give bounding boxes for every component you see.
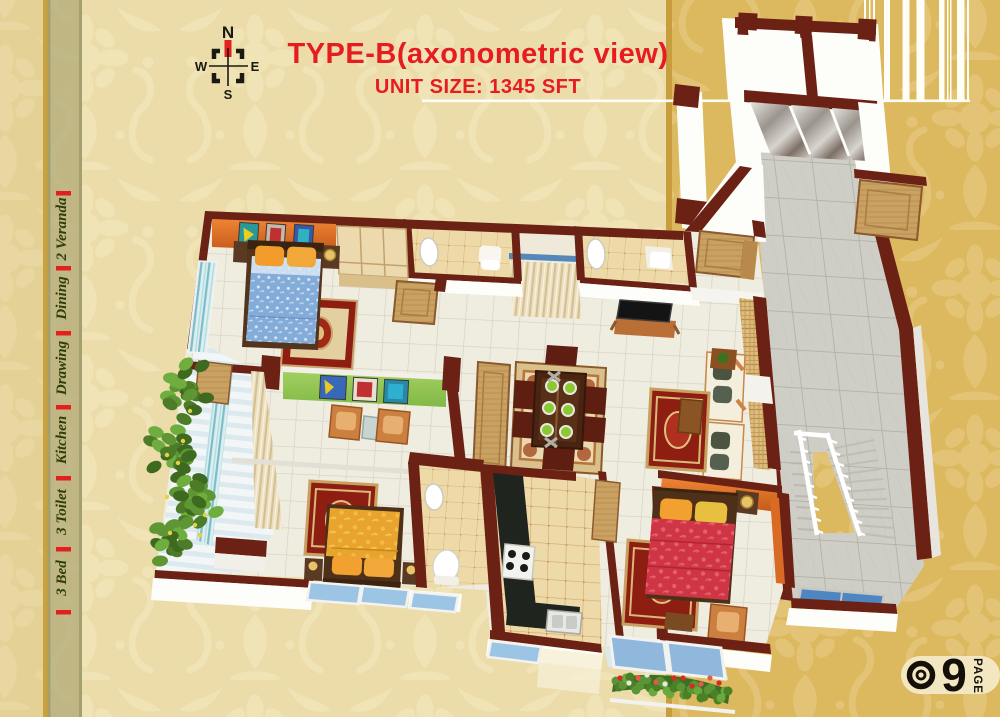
svg-text:Kitchen: Kitchen — [54, 416, 70, 465]
svg-text:N: N — [222, 23, 234, 42]
svg-text:Drawing: Drawing — [54, 340, 70, 396]
svg-text:TYPE-B(axonometric view): TYPE-B(axonometric view) — [287, 38, 668, 70]
svg-text:S: S — [224, 87, 233, 102]
svg-text:E: E — [251, 59, 260, 74]
svg-text:UNIT SIZE: 1345 SFT: UNIT SIZE: 1345 SFT — [375, 76, 581, 98]
svg-text:2 Veranda: 2 Veranda — [54, 197, 70, 261]
svg-text:PAGE: PAGE — [971, 658, 983, 694]
svg-text:W: W — [195, 59, 208, 74]
svg-text:3 Toilet: 3 Toilet — [54, 488, 70, 536]
svg-text:Dining: Dining — [54, 276, 70, 321]
svg-text:9: 9 — [941, 649, 967, 701]
svg-text:3 Bed: 3 Bed — [54, 560, 70, 597]
